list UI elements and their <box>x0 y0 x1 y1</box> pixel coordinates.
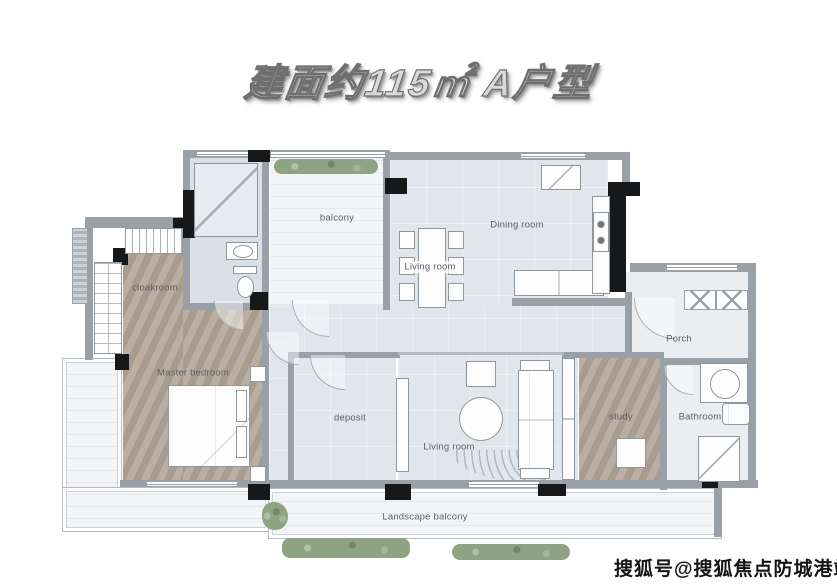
shower-stall <box>698 436 740 482</box>
wall <box>748 263 756 488</box>
column <box>385 178 407 194</box>
balcony-top-floor <box>270 158 383 305</box>
bathtub-icon <box>722 403 750 425</box>
sliding-door <box>562 358 575 480</box>
wall <box>398 352 564 355</box>
dining-chair <box>448 231 464 249</box>
wall <box>390 152 630 160</box>
room-label-dining-room: Dining room <box>490 220 543 230</box>
wall <box>85 217 185 228</box>
wall <box>512 298 632 306</box>
laundry-cabinet <box>94 262 122 354</box>
dining-chair <box>448 283 464 301</box>
window <box>468 481 540 488</box>
toilet-tank <box>233 266 257 274</box>
coffee-table <box>459 397 503 441</box>
wrap-balcony-bottom <box>62 487 270 532</box>
hedge <box>282 538 410 558</box>
dining-chair <box>399 283 415 301</box>
bathroom-sink-icon <box>710 369 740 399</box>
column <box>250 292 268 310</box>
nightstand <box>250 366 266 382</box>
room-label-study: study <box>609 412 633 422</box>
column <box>385 484 411 500</box>
window <box>146 481 238 487</box>
window <box>666 264 738 271</box>
wall <box>622 152 630 186</box>
bench-seat <box>514 270 604 296</box>
room-label-balcony: balcony <box>320 213 354 223</box>
wall <box>288 352 294 487</box>
shoe-cabinet <box>684 290 716 310</box>
balcony-planter <box>274 159 378 174</box>
room-label-deposit: deposit <box>334 413 366 423</box>
wall <box>714 488 722 537</box>
landscape-balcony-floor <box>268 488 722 539</box>
toilet-icon <box>237 276 254 298</box>
ac-ledge <box>72 228 88 304</box>
dining-chair <box>399 231 415 249</box>
watermark: 搜狐号@搜狐焦点防城港站 <box>614 554 837 581</box>
window <box>520 153 586 159</box>
hedge <box>452 544 570 560</box>
sink-basin-icon <box>233 245 253 258</box>
kitchen-sink <box>541 165 581 190</box>
pillow <box>236 390 247 422</box>
room-label-cloakroom: cloakroom <box>132 283 178 293</box>
column <box>115 354 129 370</box>
room-label-living-room: Living room <box>423 442 474 452</box>
nightstand <box>250 466 266 482</box>
page-title: 建面约115㎡ A户型 <box>16 52 824 107</box>
corner-plant <box>262 502 288 530</box>
window <box>270 151 386 158</box>
pillow <box>236 426 247 458</box>
floor-plan-page: cloakroom balcony Living room Dining roo… <box>0 0 837 584</box>
sofa <box>518 370 554 470</box>
wall <box>562 352 664 358</box>
column <box>538 484 566 496</box>
shower <box>194 163 258 237</box>
shoe-cabinet <box>716 290 748 310</box>
room-label-porch: Porch <box>666 334 692 344</box>
room-label-living-dining: Living room <box>402 261 457 273</box>
dresser <box>125 228 183 254</box>
side-table <box>520 468 550 479</box>
column <box>248 484 270 500</box>
column <box>248 150 270 162</box>
stool <box>466 361 496 387</box>
room-label-bathroom: Bathroom <box>679 412 722 422</box>
column <box>620 182 640 196</box>
wall <box>262 158 269 303</box>
stove-icon <box>593 212 609 252</box>
room-label-landscape-balcony: Landscape balcony <box>382 512 467 522</box>
room-label-master-bedroom: Master bedroom <box>157 368 229 378</box>
window <box>196 151 250 157</box>
desk <box>616 438 646 468</box>
side-table <box>520 360 550 371</box>
column <box>608 182 626 292</box>
tv-cabinet <box>396 378 409 472</box>
